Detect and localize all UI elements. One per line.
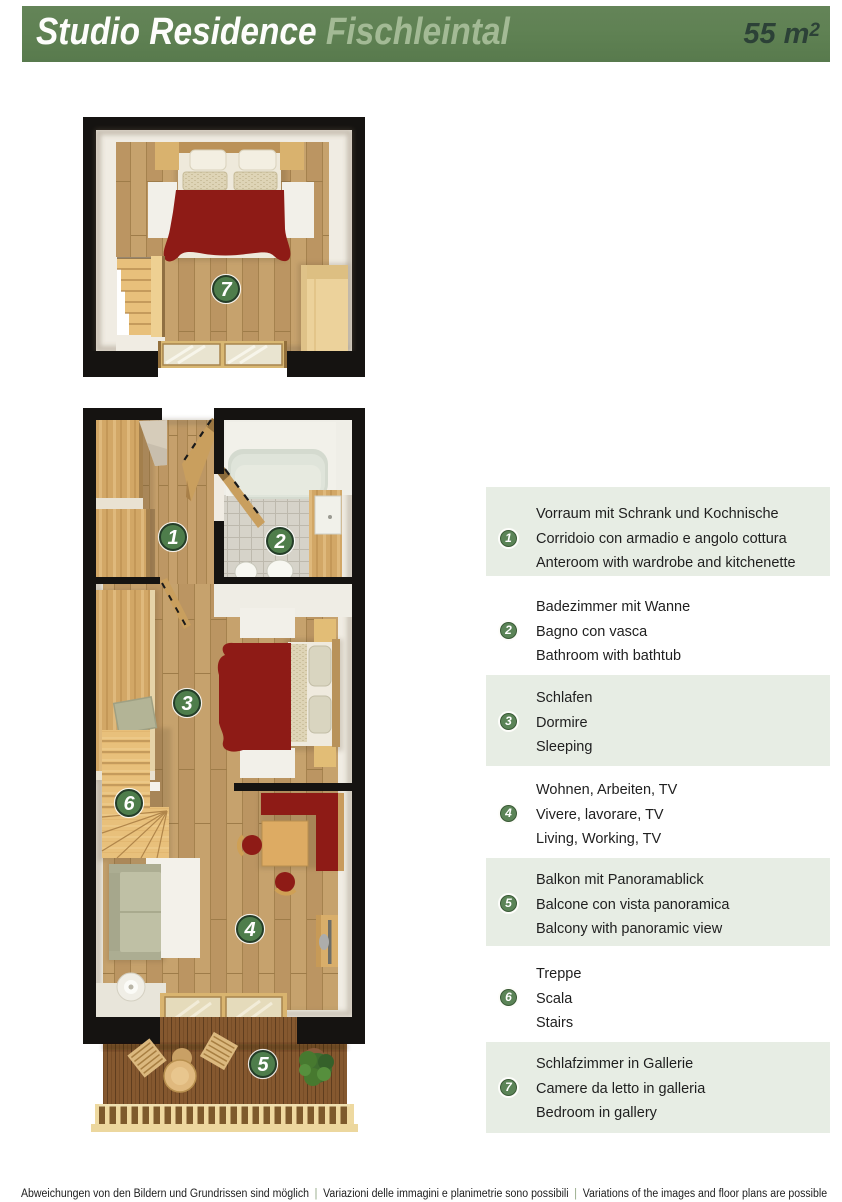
svg-text:7: 7: [220, 279, 232, 301]
svg-text:3: 3: [181, 693, 192, 715]
svg-text:4: 4: [243, 919, 255, 941]
svg-text:2: 2: [273, 531, 285, 553]
svg-text:5: 5: [257, 1054, 269, 1076]
svg-text:1: 1: [167, 527, 178, 549]
svg-text:6: 6: [123, 793, 135, 815]
